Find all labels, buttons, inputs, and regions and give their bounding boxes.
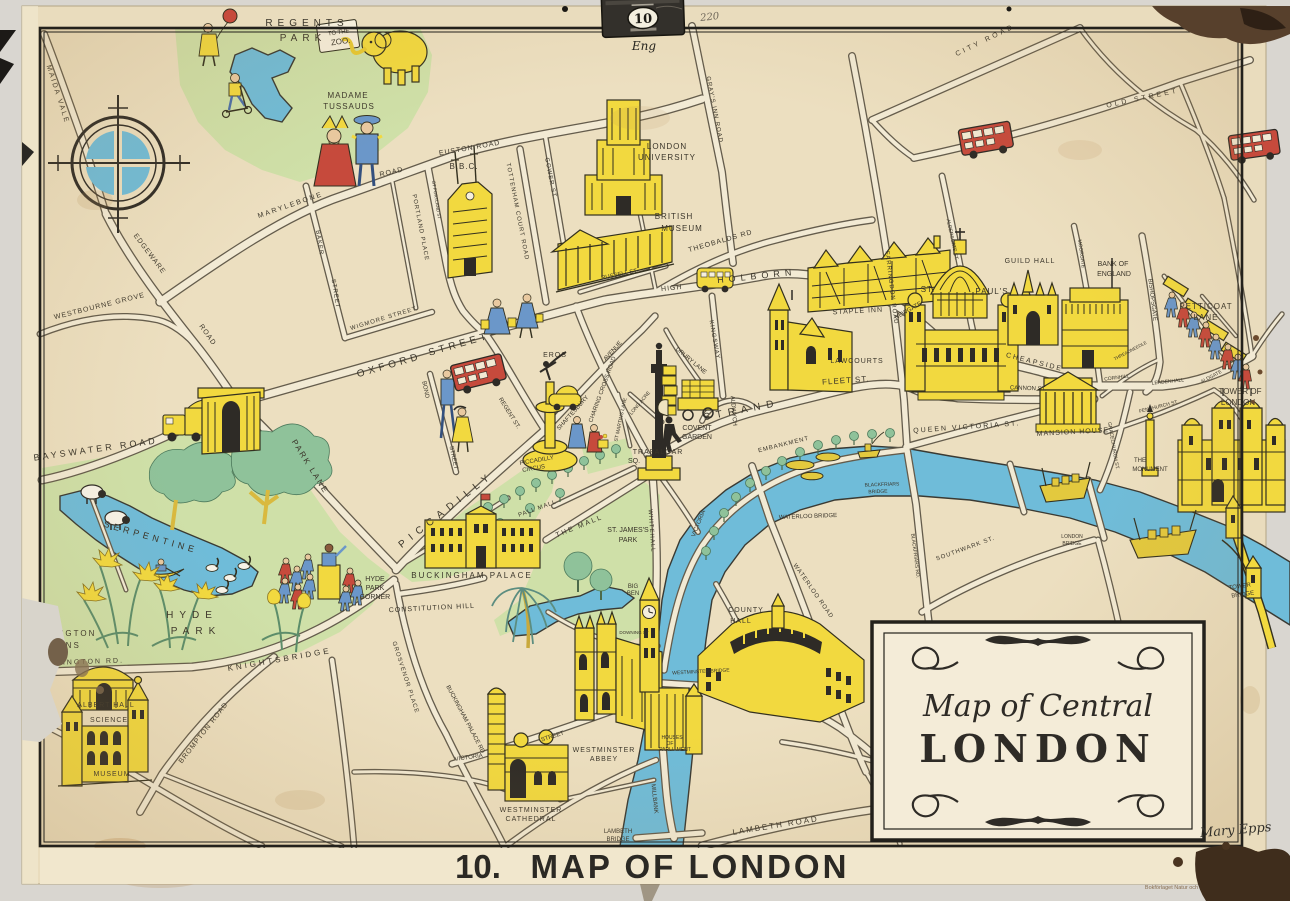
hanger-clip: 10 — [601, 0, 684, 37]
poster-photo: REGENTSPARKTO THEZOO.MADAMETUSSAUDSB.B.C… — [0, 0, 1290, 901]
caption-title: MAP OF LONDON — [531, 848, 850, 885]
caption-band: 10. MAP OF LONDON — [40, 848, 1242, 885]
hanger-number: 10 — [634, 12, 653, 28]
pin-right — [1007, 7, 1012, 12]
hanger-ink-note: Eng — [631, 39, 656, 53]
cartouche-title-caps: LONDON — [919, 726, 1156, 771]
damage-bottom-right — [1195, 845, 1290, 901]
cartouche: Map of Central LONDON — [872, 622, 1204, 840]
poster-left-edge — [22, 6, 38, 884]
pin-left — [562, 6, 568, 12]
cartouche-title-script: Map of Central — [922, 689, 1153, 724]
caption-number: 10. — [455, 848, 501, 885]
pencil-annotation: 220 — [699, 11, 721, 24]
map-of-london-poster: REGENTSPARKTO THEZOO.MADAMETUSSAUDSB.B.C… — [0, 0, 1290, 901]
